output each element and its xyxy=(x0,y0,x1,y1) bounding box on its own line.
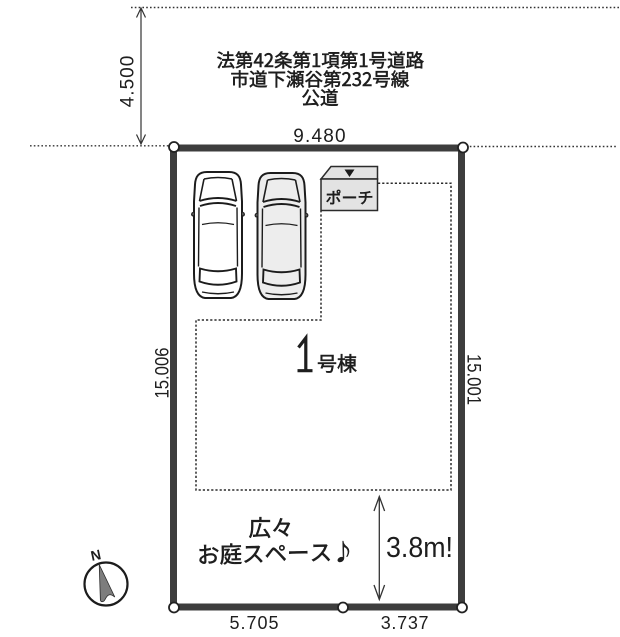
svg-text:3.8m!: 3.8m! xyxy=(386,532,453,564)
svg-text:4.500: 4.500 xyxy=(118,55,139,108)
svg-text:N: N xyxy=(89,546,102,564)
svg-text:15.006: 15.006 xyxy=(153,348,174,399)
svg-text:15.001: 15.001 xyxy=(463,354,484,405)
svg-text:9.480: 9.480 xyxy=(293,126,347,147)
svg-text:5.705: 5.705 xyxy=(229,613,279,633)
svg-text:3.737: 3.737 xyxy=(381,613,430,633)
